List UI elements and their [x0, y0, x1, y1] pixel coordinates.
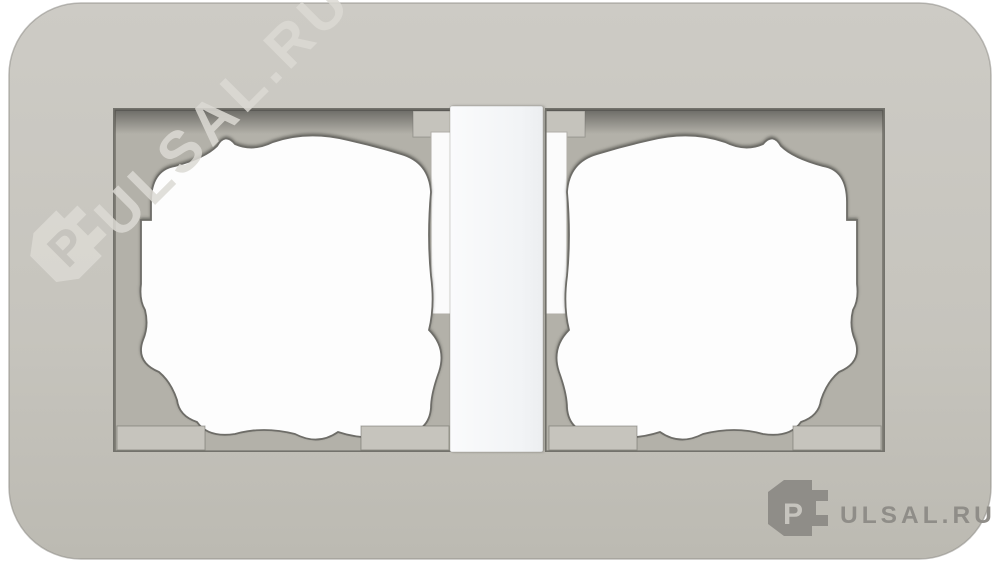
logo-letter-p: P	[783, 498, 803, 531]
logo-text: ULSAL.RU	[840, 502, 996, 529]
product-photo-canvas: P ULSAL.RU P ULSAL.RU	[0, 0, 1000, 564]
center-divider-strip	[450, 106, 543, 452]
socket-opening-right	[545, 108, 885, 452]
socket-frame-product-image: P ULSAL.RU P ULSAL.RU	[0, 0, 1000, 564]
